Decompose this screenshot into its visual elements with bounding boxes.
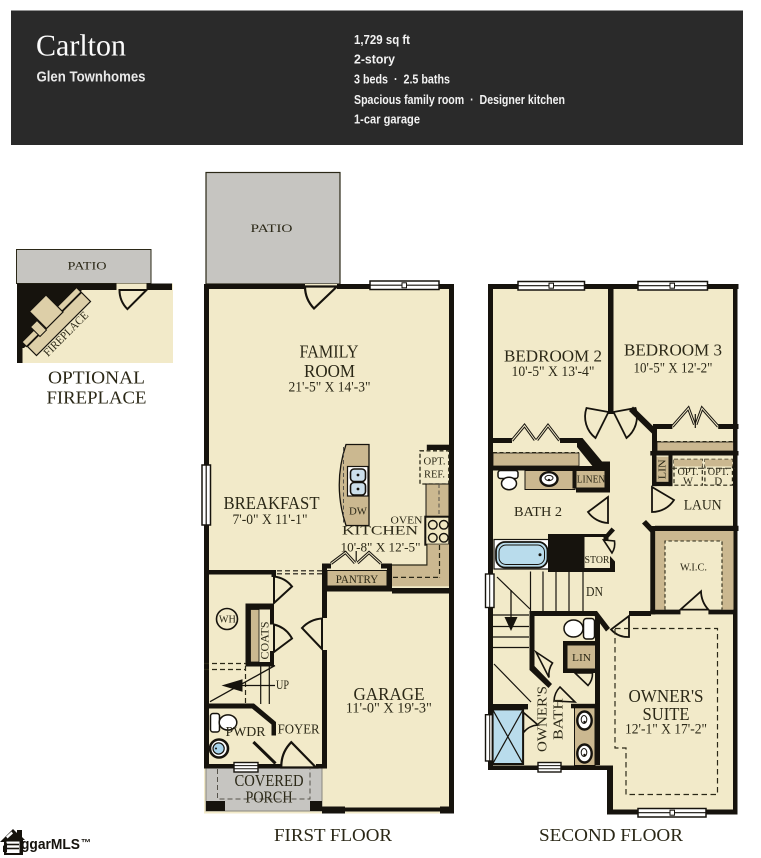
svg-text:3 beds · 2.5 baths: 3 beds · 2.5 baths	[354, 72, 450, 87]
svg-text:Carlton: Carlton	[36, 28, 126, 63]
svg-text:LINEN: LINEN	[577, 475, 606, 486]
svg-text:DN: DN	[586, 584, 603, 599]
svg-text:FIRST FLOOR: FIRST FLOOR	[274, 825, 392, 845]
svg-text:PORCH: PORCH	[246, 788, 293, 807]
svg-text:WH: WH	[219, 614, 236, 625]
svg-text:W: W	[683, 477, 694, 488]
svg-text:10'-5" X 13'-4": 10'-5" X 13'-4"	[512, 364, 595, 380]
svg-text:LAUN: LAUN	[684, 498, 722, 514]
svg-text:FOYER: FOYER	[278, 723, 321, 738]
svg-text:BATH 2: BATH 2	[514, 504, 562, 519]
svg-text:PATIO: PATIO	[251, 223, 293, 235]
svg-text:10'-8" X 12'-5": 10'-8" X 12'-5"	[341, 540, 421, 555]
svg-text:OVEN: OVEN	[391, 516, 423, 527]
svg-text:UP: UP	[276, 678, 289, 692]
svg-text:W.I.C.: W.I.C.	[680, 562, 707, 574]
svg-text:COATS: COATS	[258, 622, 272, 660]
svg-text:1,729 sq ft: 1,729 sq ft	[354, 32, 411, 47]
svg-text:STOR: STOR	[585, 555, 610, 566]
svg-text:OWNER'S: OWNER'S	[629, 686, 704, 706]
svg-text:Glen Townhomes: Glen Townhomes	[37, 69, 146, 86]
svg-text:BEDROOM 3: BEDROOM 3	[624, 341, 722, 360]
svg-text:D: D	[714, 477, 722, 488]
svg-text:PANTRY: PANTRY	[336, 572, 379, 586]
svg-text:DW: DW	[349, 506, 368, 518]
svg-text:ggarMLS: ggarMLS	[21, 837, 80, 853]
svg-text:21'-5" X 14'-3": 21'-5" X 14'-3"	[289, 380, 371, 396]
svg-text:REF.: REF.	[424, 470, 445, 481]
svg-text:7'-0" X 11'-1": 7'-0" X 11'-1"	[233, 512, 308, 528]
svg-text:ROOM: ROOM	[304, 361, 355, 381]
svg-text:PWDR: PWDR	[226, 725, 267, 740]
svg-text:2-story: 2-story	[354, 52, 396, 67]
svg-text:SECOND FLOOR: SECOND FLOOR	[539, 825, 683, 845]
svg-text:OPTIONAL: OPTIONAL	[48, 368, 145, 388]
svg-text:FAMILY: FAMILY	[300, 342, 359, 362]
svg-text:Spacious family room · Desig: Spacious family room · Designer kitchen	[354, 92, 565, 107]
svg-text:BATH: BATH	[552, 698, 567, 740]
svg-text:FIREPLACE: FIREPLACE	[47, 388, 147, 408]
svg-text:1-car garage: 1-car garage	[354, 112, 420, 127]
svg-text:11'-0" X 19'-3": 11'-0" X 19'-3"	[346, 701, 432, 717]
svg-text:BEDROOM 2: BEDROOM 2	[504, 347, 602, 366]
svg-text:10'-5" X 12'-2": 10'-5" X 12'-2"	[634, 361, 713, 377]
svg-text:LIN: LIN	[658, 459, 669, 479]
svg-text:OPT.: OPT.	[424, 457, 446, 468]
svg-text:12'-1" X 17'-2": 12'-1" X 17'-2"	[625, 722, 707, 738]
svg-text:OWNER'S: OWNER'S	[536, 686, 551, 752]
svg-text:BREAKFAST: BREAKFAST	[224, 493, 320, 513]
svg-text:LIN: LIN	[572, 653, 591, 664]
svg-text:PATIO: PATIO	[68, 261, 107, 273]
svg-text:™: ™	[81, 838, 91, 849]
